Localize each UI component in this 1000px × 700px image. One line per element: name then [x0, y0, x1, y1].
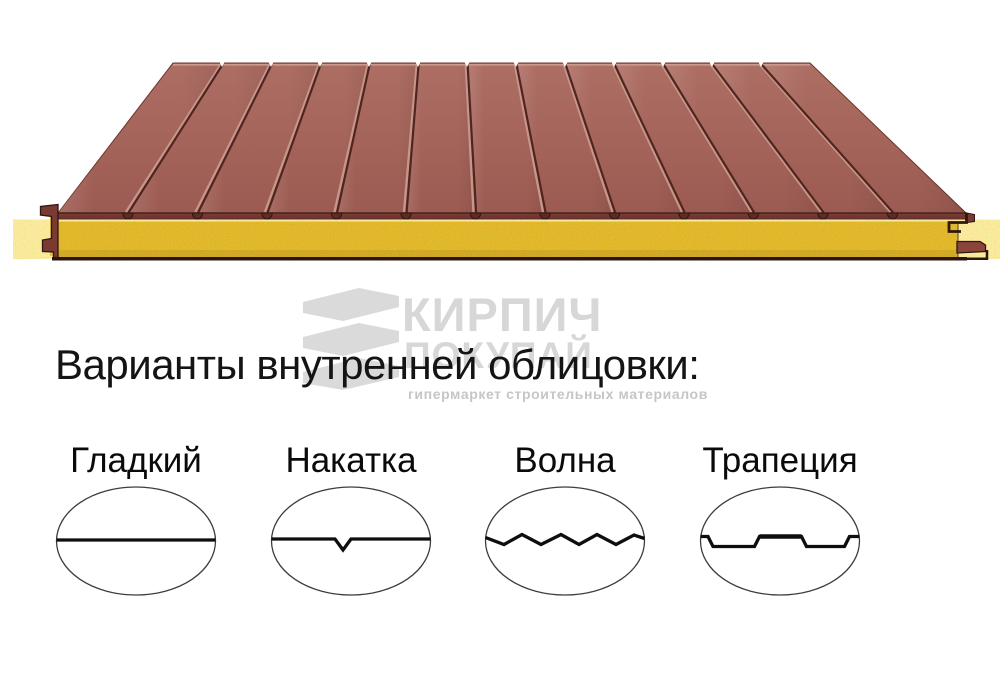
panel-bottom-sheet — [52, 257, 967, 261]
option-smooth: Гладкий — [47, 441, 225, 597]
option-knurl: Накатка — [262, 441, 440, 597]
product-image-canvas: КИРПИЧ ПОКУПАЙ гипермаркет строительных … — [0, 0, 1000, 700]
panel-core-shading — [58, 250, 958, 257]
profile-trapeze-illustration — [698, 485, 862, 597]
option-smooth-label: Гладкий — [47, 441, 225, 481]
option-wave-label: Волна — [476, 441, 654, 481]
panel-strips — [58, 64, 966, 212]
panel-left-lock-joint — [41, 205, 59, 258]
profile-smooth-illustration — [54, 485, 218, 597]
profile-knurl-illustration — [269, 485, 433, 597]
sandwich-panel-image — [0, 0, 1000, 300]
option-wave: Волна — [476, 441, 654, 597]
brand-wordmark: КИРПИЧ — [402, 291, 602, 338]
profile-wave-illustration — [483, 485, 647, 597]
brand-tagline: гипермаркет строительных материалов — [408, 387, 708, 401]
option-knurl-label: Накатка — [262, 441, 440, 481]
option-trapeze: Трапеция — [691, 441, 869, 597]
page-title: Варианты внутренней облицовки: — [55, 344, 699, 386]
option-trapeze-label: Трапеция — [691, 441, 869, 481]
